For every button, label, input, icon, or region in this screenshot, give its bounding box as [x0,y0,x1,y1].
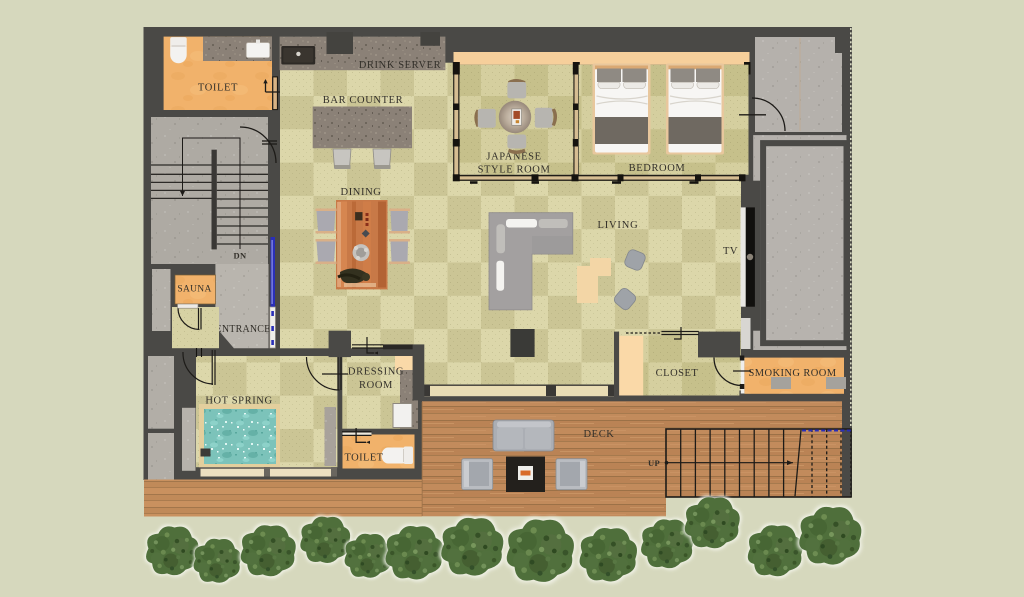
svg-text:LIVING: LIVING [598,220,639,231]
svg-text:DECK: DECK [584,429,615,440]
svg-text:ENTRANCE: ENTRANCE [216,324,271,335]
svg-text:SMOKING ROOM: SMOKING ROOM [749,368,837,379]
svg-text:DRESSING: DRESSING [348,367,404,378]
svg-text:ROOM: ROOM [359,380,393,391]
svg-text:BAR COUNTER: BAR COUNTER [323,95,403,106]
svg-text:BEDROOM: BEDROOM [629,163,686,174]
svg-text:TV: TV [723,246,738,257]
svg-text:TOILET: TOILET [345,453,384,464]
svg-text:DRINK SERVER: DRINK SERVER [359,60,442,71]
svg-text:CLOSET: CLOSET [656,368,699,379]
svg-text:SAUNA: SAUNA [177,285,211,295]
svg-text:DINING: DINING [341,187,382,198]
svg-text:TOILET: TOILET [198,83,238,94]
svg-text:UP: UP [648,458,660,468]
svg-text:DN: DN [234,251,247,261]
svg-text:STYLE ROOM: STYLE ROOM [478,165,551,176]
